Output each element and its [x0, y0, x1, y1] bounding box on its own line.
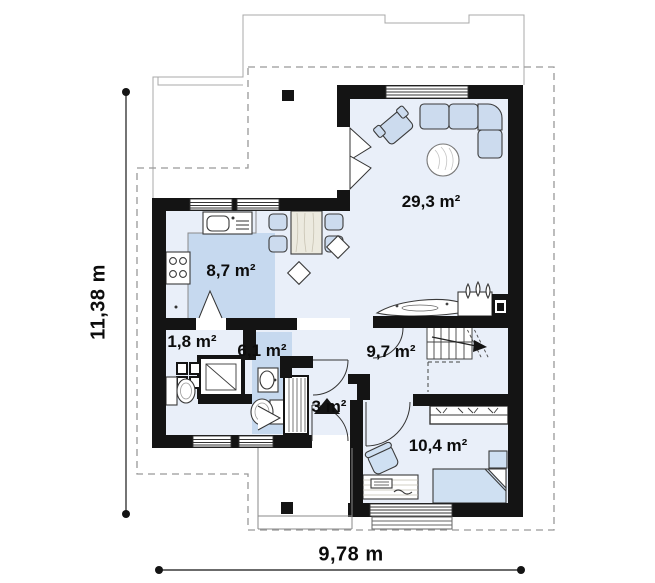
wall-living-hall	[373, 316, 523, 328]
bed	[433, 469, 506, 503]
carport-column	[282, 90, 294, 101]
width-dimension-line	[155, 566, 525, 574]
washbasin	[258, 368, 278, 392]
dining-chair	[269, 214, 287, 230]
room-label-entry: 3 m²	[312, 397, 347, 417]
wall-right	[508, 85, 523, 517]
nightstand	[489, 451, 507, 468]
width-dimension-label: 9,78 m	[318, 544, 383, 567]
room-label-bathroom: 6,1 m²	[237, 341, 286, 361]
flame-icon	[466, 284, 470, 298]
stove	[166, 252, 190, 284]
bathroom-window	[239, 436, 273, 447]
wardrobe	[430, 406, 508, 424]
entry-closet	[284, 376, 308, 434]
wall-pier-a	[348, 374, 370, 384]
wall-living-left-lower	[337, 190, 350, 211]
bedroom-window	[370, 504, 452, 516]
room-label-bedroom: 10,4 m²	[409, 436, 468, 456]
wall-kitchen-bottom-a	[152, 318, 196, 330]
dining-table	[291, 211, 322, 254]
wall-bottom-left	[152, 435, 312, 448]
desk	[363, 475, 418, 499]
wall-pier-b	[357, 384, 370, 400]
dining-chair	[325, 214, 343, 230]
height-dimension-line	[122, 88, 130, 518]
room-label-hall: 9,7 m²	[366, 342, 415, 362]
wall-bedroom-top	[413, 394, 523, 406]
shower	[199, 357, 243, 397]
entry-porch	[258, 448, 352, 529]
round-rug	[427, 144, 459, 176]
wall-under-shower	[198, 394, 252, 404]
wall-kitchen-bottom-b	[226, 318, 297, 330]
room-label-wc: 1,8 m²	[167, 332, 216, 352]
kitchen-sink	[203, 212, 252, 234]
wc-toilet	[166, 377, 195, 405]
kitchen-window	[190, 199, 232, 210]
height-dimension-label: 11,38 m	[88, 264, 111, 340]
room-label-living-room: 29,3 m²	[402, 192, 461, 212]
porch-column	[281, 502, 293, 514]
flame-icon	[486, 284, 490, 298]
room-label-kitchen: 8,7 m²	[206, 261, 255, 281]
flame-icon	[476, 282, 480, 296]
bathroom-window	[193, 436, 231, 447]
living-room-window	[386, 86, 468, 98]
terrace-steps	[372, 517, 452, 529]
kitchen-window	[237, 199, 279, 210]
floor-plan-page: 8,7 m² 29,3 m² 1,8 m² 6,1 m² 9,7 m² 3 m²…	[0, 0, 655, 583]
dining-chair	[269, 236, 287, 252]
